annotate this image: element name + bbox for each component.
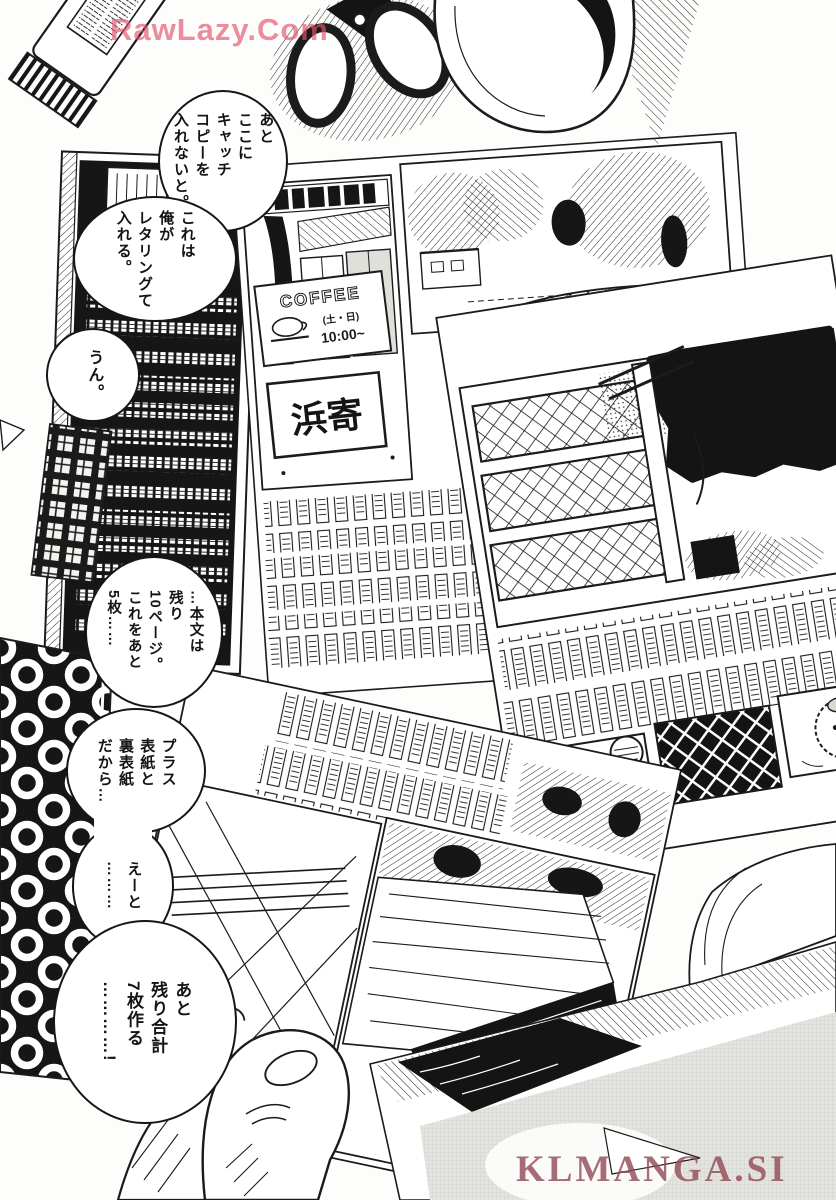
speech-bubble-5: プラス 表紙と 裏表紙 だから… xyxy=(66,708,206,834)
speech-bubble-2-text: これは 俺が レタリングて 入れる。 xyxy=(112,210,197,309)
shop-sign-text: 浜寄 xyxy=(289,393,365,441)
paper-corner xyxy=(0,420,24,450)
watermark-top: RawLazy.Com xyxy=(110,12,329,48)
manga-page: COFFEE (土・日) 10:00~ 浜寄 xyxy=(0,0,836,1200)
speech-bubble-6: あと 残り合計 7枚作る …………! xyxy=(53,920,237,1124)
speech-bubble-3-text: うん。 xyxy=(82,349,105,402)
watermark-bottom: KLMANGA.SI xyxy=(516,1148,788,1191)
speech-bubble-4: …本文は 残り 10ページ。 これをあと 5枚…… xyxy=(85,556,223,708)
speech-bubble-4-text: …本文は 残り 10ページ。 これをあと 5枚…… xyxy=(103,590,206,673)
speech-bubble-1-text: あと ここに キャッチ コピーを 入れないと。 xyxy=(170,112,276,211)
middle-page-text-rows xyxy=(259,486,502,669)
panel-storefront: COFFEE (土・日) 10:00~ 浜寄 xyxy=(241,175,412,490)
bubble-joint xyxy=(94,818,152,844)
shop-sign: 浜寄 xyxy=(267,372,386,457)
speech-bubble-5-text: プラス 表紙と 裏表紙 だから… xyxy=(93,738,178,804)
speech-bubble-3: うん。 xyxy=(46,328,140,422)
speech-bubble-2: これは 俺が レタリングて 入れる。 xyxy=(73,196,237,322)
mug xyxy=(435,0,700,148)
speech-bubble-6-text: あと 残り合計 7枚作る …………! xyxy=(97,981,194,1062)
tree-foliage-black xyxy=(649,329,836,490)
speech-bubble-5b-text: えーと ……… xyxy=(102,861,145,911)
coffee-sign: COFFEE (土・日) 10:00~ xyxy=(254,271,391,366)
